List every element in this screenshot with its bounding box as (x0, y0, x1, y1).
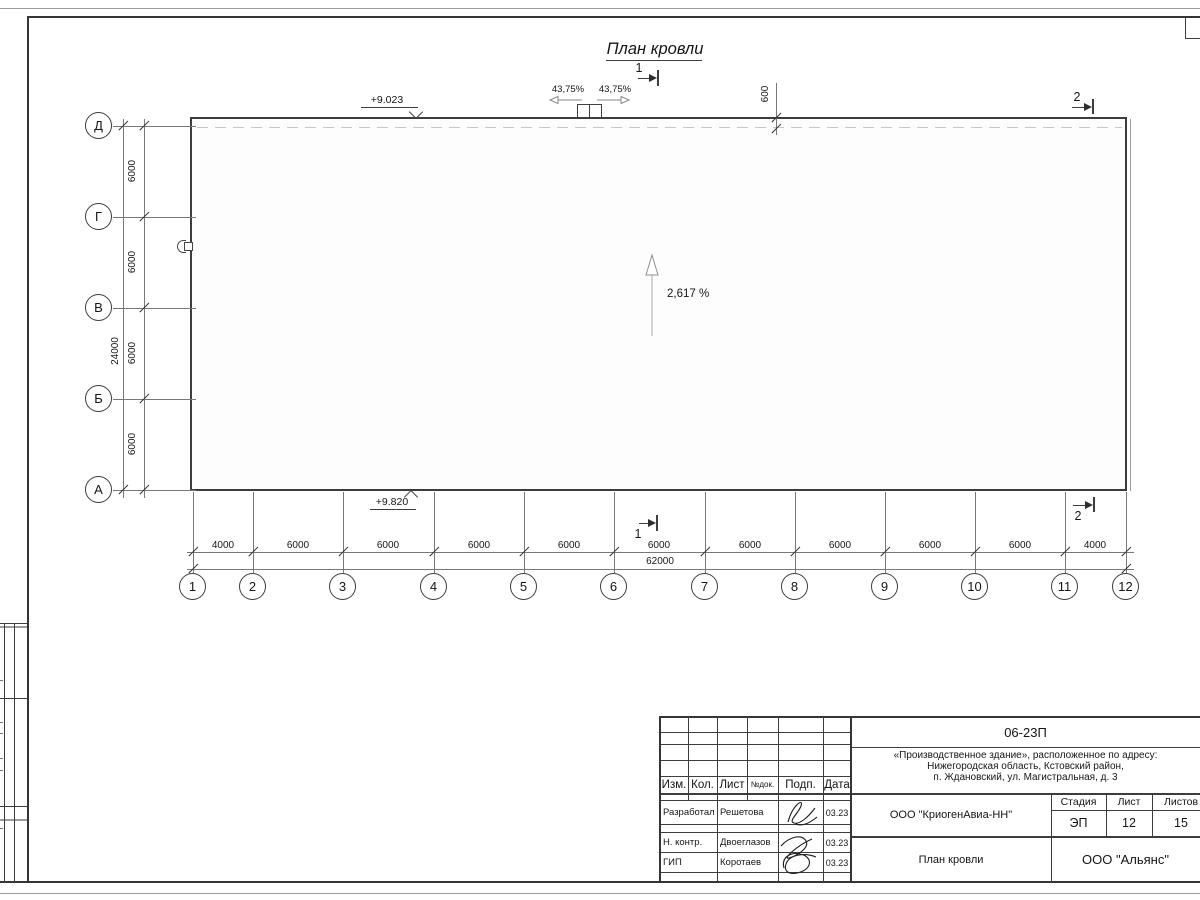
left-dim-total-label: 24000 (111, 329, 121, 373)
tb-line (659, 716, 661, 883)
drawing-title: План кровли (605, 41, 705, 58)
tb-drawing-name: План кровли (851, 837, 1051, 882)
axis-letter: В (94, 300, 103, 315)
left-dim-label: 6000 (128, 242, 138, 282)
tb-stage-label: Стадия (1051, 793, 1106, 810)
elevation-top-underline (361, 107, 418, 108)
parapet-dim-label: 600 (761, 79, 771, 109)
tb-row-date: 03.23 (823, 856, 851, 870)
tb-sheet-value: 12 (1106, 810, 1152, 836)
axis-line-9 (885, 492, 886, 573)
cut-text-fragment (0, 680, 3, 681)
left-dim-label: 6000 (128, 424, 138, 464)
axis-circle-number: 5 (510, 573, 537, 600)
frame-left (27, 16, 29, 883)
axis-circle-number: 10 (961, 573, 988, 600)
cut-text-fragment (0, 758, 3, 759)
hatch-slope-left-label: 43,75% (545, 85, 591, 95)
cut-text-fragment (0, 733, 3, 734)
roof-hatch-right (589, 104, 602, 118)
frame-top (27, 16, 1200, 18)
section2-top-bar (1092, 99, 1094, 114)
axis-number: 1 (189, 579, 196, 594)
axis-line-g (113, 217, 196, 218)
axis-letter: Г (95, 209, 102, 224)
tb-col-list: Лист (717, 776, 747, 793)
bottom-dim-label: 6000 (910, 541, 950, 551)
hatch-slope-right-arrow (596, 95, 630, 105)
section1-bottom-arrowhead (648, 519, 656, 527)
axis-number: 3 (339, 579, 346, 594)
axis-line-4 (434, 492, 435, 573)
bottom-dim-label: 6000 (730, 541, 770, 551)
tb-col-podp: Подп. (778, 776, 823, 793)
drawing-title-underline (606, 60, 702, 61)
frame-corner-notch-v (1185, 17, 1186, 38)
tb-row-name: Двоеглазов (720, 838, 771, 848)
parapet-dashed-line (197, 127, 1122, 128)
axis-letter: Б (94, 391, 103, 406)
bottom-dim-label: 6000 (639, 541, 679, 551)
tb-sheets-label: Листов (1152, 793, 1200, 810)
tb-address-line1: «Производственное здание», расположенное… (851, 751, 1200, 761)
axis-number: 9 (881, 579, 888, 594)
margin-box-col (4, 623, 5, 882)
axis-line-b (113, 399, 196, 400)
axis-circle-number: 9 (871, 573, 898, 600)
axis-line-8 (795, 492, 796, 573)
roof-right-wall-line (1130, 119, 1131, 491)
tb-col-ndok: №док. (747, 776, 778, 793)
axis-circle-number: 8 (781, 573, 808, 600)
axis-line-10 (975, 492, 976, 573)
cut-text-fragment (0, 770, 3, 771)
hatch-slope-left-arrow (549, 95, 583, 105)
axis-number: 2 (249, 579, 256, 594)
tb-sheet-label: Лист (1106, 793, 1152, 810)
tb-col-data: Дата (823, 776, 851, 793)
tb-col-izm: Изм. (660, 776, 688, 793)
axis-number: 11 (1058, 579, 1072, 594)
ladder-hook-icon (184, 242, 193, 251)
tb-org-name: ООО "Альянс" (1051, 837, 1200, 882)
tb-row-role: ГИП (663, 858, 682, 868)
axis-line-3 (343, 492, 344, 573)
section2-top-label: 2 (1071, 91, 1083, 104)
bottom-dim-line-total (187, 569, 1134, 570)
axis-number: 10 (967, 579, 981, 594)
tb-company: ООО "КриогенАвиа-НН" (851, 793, 1051, 836)
axis-line-12 (1126, 492, 1127, 573)
axis-circle-letter: Б (85, 385, 112, 412)
slope-arrow (638, 252, 668, 342)
axis-number: 4 (430, 579, 437, 594)
axis-line-11 (1065, 492, 1066, 573)
sheet-outer-top-line (0, 8, 1200, 9)
bottom-dim-total-label: 62000 (640, 557, 680, 567)
tb-stage-value: ЭП (1051, 810, 1106, 836)
section1-bottom-label: 1 (632, 528, 644, 541)
axis-line-6 (614, 492, 615, 573)
section2-bottom-label: 2 (1072, 510, 1084, 523)
axis-number: 12 (1118, 579, 1132, 594)
bottom-dim-label: 6000 (549, 541, 589, 551)
axis-circle-number: 3 (329, 573, 356, 600)
axis-circle-letter: А (85, 476, 112, 503)
axis-number: 5 (520, 579, 527, 594)
elevation-top-label: +9.023 (358, 95, 416, 106)
axis-circle-letter: В (85, 294, 112, 321)
axis-circle-number: 2 (239, 573, 266, 600)
tb-col-kol: Кол. (688, 776, 717, 793)
axis-circle-letter: Г (85, 203, 112, 230)
axis-circle-number: 7 (691, 573, 718, 600)
elevation-bottom-underline (370, 509, 416, 510)
axis-line-1 (193, 492, 194, 573)
section2-top-arrowhead (1084, 103, 1092, 111)
section1-top-label: 1 (633, 62, 645, 75)
tb-address-line2: Нижегородская область, Кстовский район, (851, 762, 1200, 772)
axis-number: 8 (791, 579, 798, 594)
axis-line-5 (524, 492, 525, 573)
tb-doc-number: 06-23П (851, 717, 1200, 747)
tb-row-name: Коротаев (720, 858, 761, 868)
frame-corner-notch-h (1185, 38, 1200, 39)
tb-address-line3: п. Ждановский, ул. Магистральная, д. 3 (851, 773, 1200, 783)
axis-circle-number: 4 (420, 573, 447, 600)
axis-circle-letter: Д (85, 112, 112, 139)
tb-row-name: Решетова (720, 808, 764, 818)
section2-bottom-bar (1093, 497, 1095, 512)
axis-line-7 (705, 492, 706, 573)
left-dim-line-total (123, 119, 124, 498)
cut-text-fragment (0, 722, 3, 723)
tb-line (717, 717, 718, 882)
axis-line-a (113, 490, 196, 491)
tb-row-role: Н. контр. (663, 838, 702, 848)
tb-line (851, 747, 1200, 748)
cut-text-fragment (0, 828, 3, 829)
section1-top-arrowhead (649, 74, 657, 82)
section1-top-bar (657, 70, 659, 86)
bottom-dim-line-segments (187, 552, 1134, 553)
sheet-outer-bottom-line (0, 893, 1200, 894)
drawing-sheet: План кровли 43,75% 43,75% 600 +9.023 +9.… (0, 0, 1200, 900)
bottom-dim-label: 6000 (820, 541, 860, 551)
bottom-dim-label: 6000 (368, 541, 408, 551)
bottom-dim-label: 4000 (1075, 541, 1115, 551)
tb-row-date: 03.23 (823, 836, 851, 850)
tb-row-role: Разработал (663, 808, 715, 818)
axis-circle-number: 11 (1051, 573, 1078, 600)
axis-line-2 (253, 492, 254, 573)
slope-label: 2,617 % (667, 289, 709, 301)
axis-number: 7 (701, 579, 708, 594)
left-dim-label: 6000 (128, 333, 138, 373)
axis-number: 6 (610, 579, 617, 594)
axis-letter: Д (94, 118, 103, 133)
bottom-dim-label: 4000 (203, 541, 243, 551)
bottom-dim-label: 6000 (459, 541, 499, 551)
axis-circle-number: 6 (600, 573, 627, 600)
section1-bottom-bar (656, 515, 658, 531)
axis-line-v (113, 308, 196, 309)
signature-razrabotal (778, 796, 826, 882)
bottom-dim-label: 6000 (1000, 541, 1040, 551)
hatch-slope-right-label: 43,75% (592, 85, 638, 95)
margin-box-col (14, 623, 15, 882)
axis-circle-number: 12 (1112, 573, 1139, 600)
bottom-dim-label: 6000 (278, 541, 318, 551)
section2-bottom-arrowhead (1085, 501, 1093, 509)
left-dim-label: 6000 (128, 151, 138, 191)
axis-circle-number: 1 (179, 573, 206, 600)
tb-row-date: 03.23 (823, 806, 851, 820)
tb-sheets-value: 15 (1152, 810, 1200, 836)
axis-line-d (113, 126, 196, 127)
axis-letter: А (94, 482, 103, 497)
